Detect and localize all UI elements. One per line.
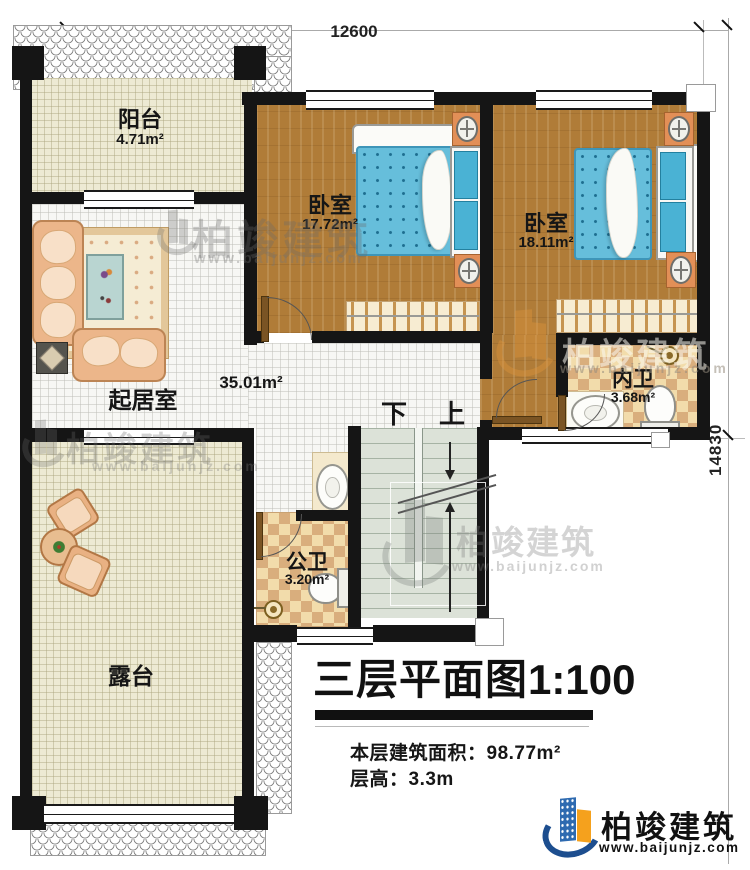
room-area-living: 35.01m² [205, 374, 297, 393]
floor-area-label: 本层建筑面积： [350, 743, 487, 764]
bed-blanket [606, 148, 638, 258]
logo-building [577, 809, 591, 843]
wall-post [686, 84, 716, 112]
column [234, 796, 268, 830]
wardrobe-hangers [346, 301, 480, 333]
room-label-balcony: 阳台 [95, 108, 185, 132]
watermark-logo-icon [158, 210, 192, 254]
room-label-living: 起居室 [102, 388, 184, 413]
ac-unit-icon [664, 112, 694, 146]
wall [312, 331, 484, 343]
floor-area-line: 本层建筑面积：98.77m² [350, 738, 561, 765]
watermark-logo-icon [24, 420, 62, 466]
wall [20, 204, 32, 444]
column [12, 796, 46, 830]
brand-logo-icon [544, 798, 598, 856]
bed-blanket [422, 150, 452, 250]
wall [480, 92, 493, 333]
stair-arrow-line [449, 442, 451, 470]
room-area-balcony: 4.71m² [95, 132, 185, 149]
room-area-public-bath: 3.20m² [270, 572, 344, 587]
roof-tile-hatch [256, 642, 292, 814]
watermark-url: www.baijunjz.com [92, 458, 261, 474]
wall-post [651, 432, 670, 448]
shower-head-icon [264, 600, 283, 619]
window [306, 90, 434, 110]
sliding-door [84, 190, 194, 209]
floor-area-value: 98.77m² [487, 743, 561, 764]
stair-arrow-down-icon [445, 470, 455, 480]
watermark-url: www.baijunjz.com [560, 360, 729, 376]
watermark-logo-icon [385, 500, 453, 584]
column [234, 46, 266, 80]
watermark-logo-icon [498, 310, 554, 374]
window [522, 427, 668, 444]
logo-building [405, 499, 425, 563]
dimension-top-label: 12600 [318, 22, 390, 42]
logo-building [168, 210, 178, 243]
room-area-bedroom2: 18.11m² [501, 235, 591, 252]
logo-building [426, 516, 443, 565]
wall [242, 630, 254, 810]
room-label-terrace: 露台 [98, 664, 164, 689]
stairs-up-label: 上 [436, 400, 468, 429]
floor-height-value: 3.3m [409, 769, 454, 790]
brand-website: www.baijunjz.com [599, 840, 740, 855]
logo-building [179, 218, 188, 244]
nightstand-shelf [454, 201, 478, 250]
floor-height-label: 层高： [350, 769, 409, 790]
window [536, 90, 652, 110]
wall [296, 510, 352, 521]
landing-sink [316, 464, 349, 510]
watermark-url: www.baijunjz.com [452, 558, 605, 574]
nightstand-shelf [660, 202, 686, 252]
room-label-bedroom2: 卧室 [504, 212, 588, 236]
plan-title: 三层平面图1:100 [313, 646, 635, 707]
nightstand-shelf [660, 152, 686, 200]
sofa-cushion [40, 266, 76, 300]
wall [348, 426, 361, 630]
logo-building [47, 429, 57, 456]
window [297, 627, 373, 645]
terrace-railing [44, 804, 234, 824]
room-area-inner-bath: 3.68m² [599, 390, 667, 405]
wall [697, 92, 710, 440]
logo-building [560, 797, 576, 841]
roof-tile-hatch [30, 820, 266, 856]
plan-title-scale: 1:100 [528, 656, 635, 704]
nightstand-shelf [454, 151, 478, 199]
wall-post [475, 618, 504, 646]
wall [20, 192, 84, 204]
column [12, 46, 44, 80]
logo-building [532, 322, 546, 359]
dimension-line-right [728, 18, 729, 864]
stairs-down-label: 下 [378, 400, 410, 429]
plan-title-name: 三层平面图 [313, 646, 528, 707]
wall [20, 444, 32, 808]
sofa-cushion [39, 301, 77, 339]
floor-height-line: 层高：3.3m [350, 764, 454, 791]
ac-unit-icon [452, 112, 482, 146]
floor-plan-canvas: 12600 14830 [0, 0, 750, 870]
title-underline-bar [315, 710, 593, 720]
coffee-table [86, 254, 124, 320]
logo-building [515, 309, 532, 358]
side-table [36, 342, 68, 374]
logo-building [35, 420, 46, 455]
wall [373, 625, 477, 642]
title-underline-thin [315, 726, 589, 727]
ac-unit-icon [666, 252, 696, 288]
wall [480, 333, 492, 379]
watermark-text: 柏竣建筑 [456, 516, 596, 564]
watermark-url: www.baijunjz.com [194, 250, 363, 267]
dimension-tick [721, 19, 732, 30]
